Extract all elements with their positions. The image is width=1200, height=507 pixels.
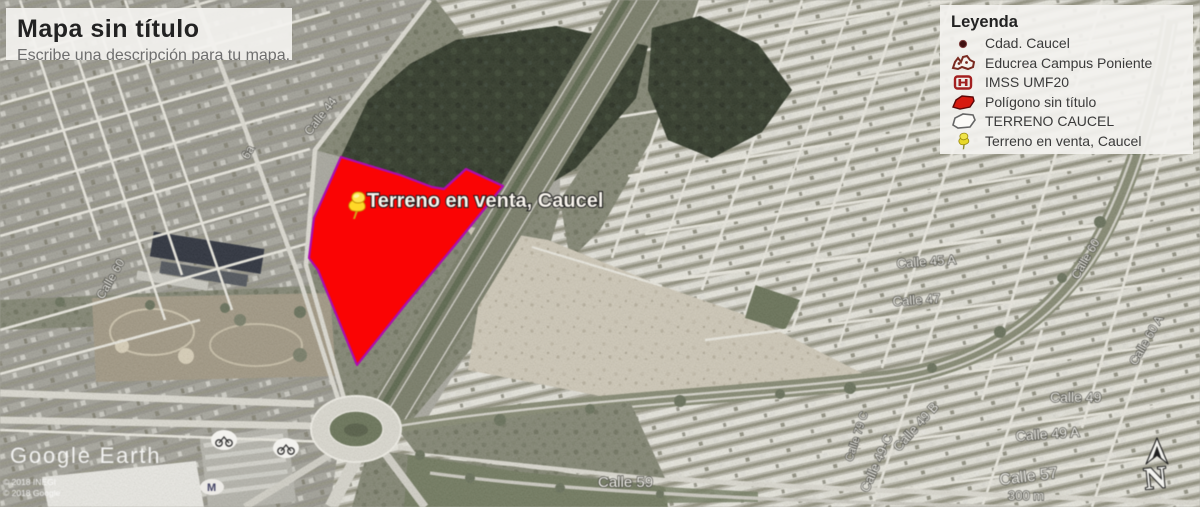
- svg-text:N: N: [1142, 459, 1168, 496]
- svg-text:Calle 49: Calle 49: [1050, 389, 1102, 405]
- svg-text:Google Earth: Google Earth: [10, 443, 161, 468]
- svg-text:Terreno en venta, Caucel: Terreno en venta, Caucel: [367, 190, 603, 212]
- svg-text:300 m: 300 m: [1008, 488, 1044, 503]
- svg-text:© 2018 INEGI: © 2018 INEGI: [3, 477, 56, 487]
- svg-text:© 2018 Google: © 2018 Google: [3, 488, 61, 498]
- svg-text:Calle 59: Calle 59: [598, 474, 653, 491]
- svg-text:M: M: [207, 482, 216, 494]
